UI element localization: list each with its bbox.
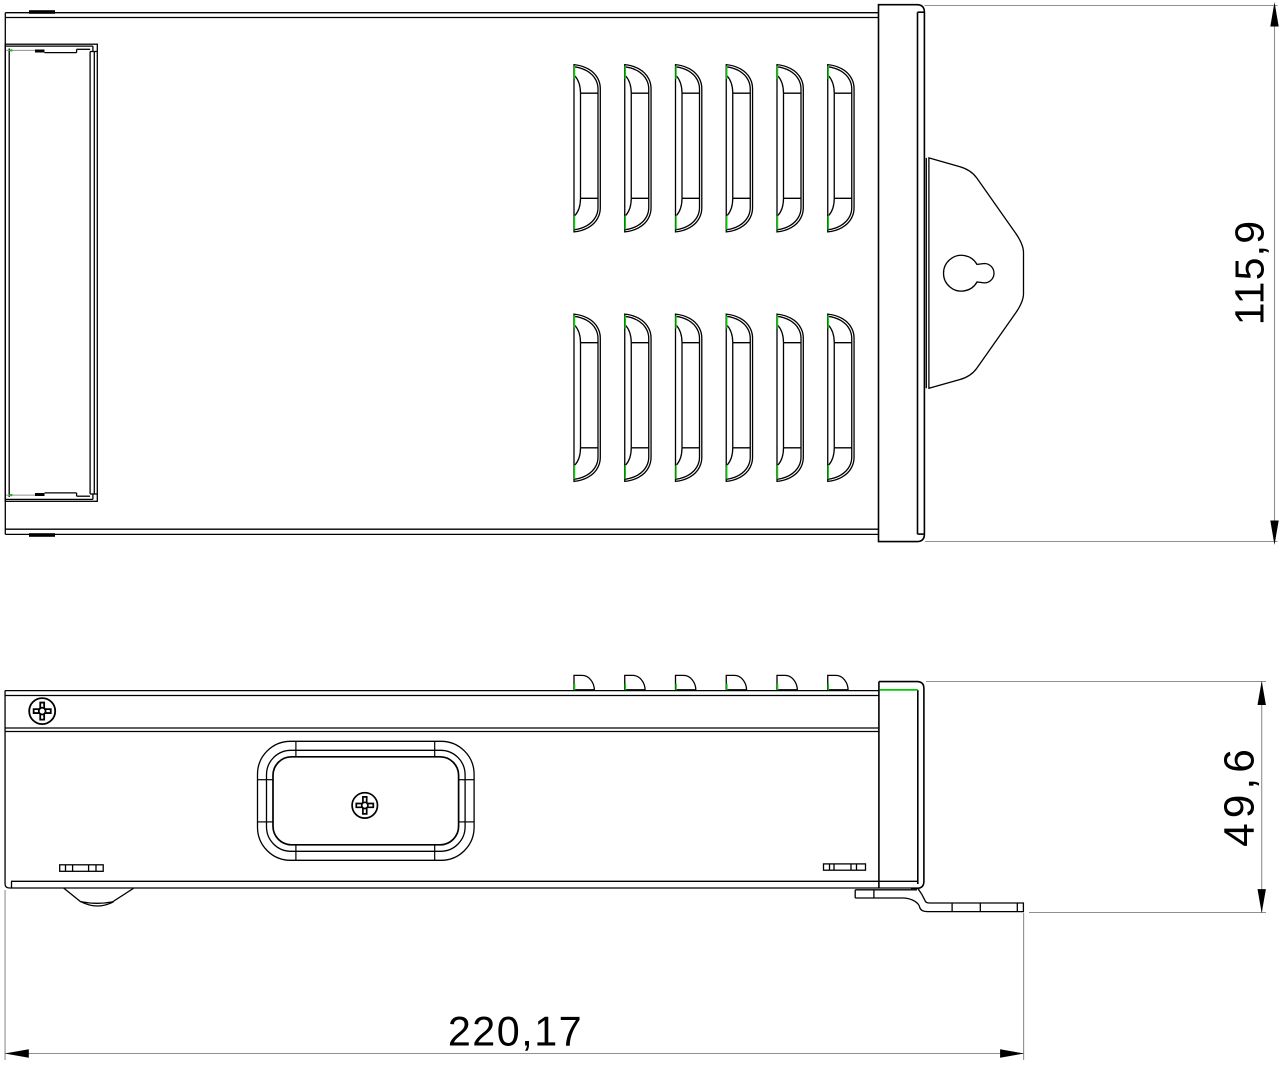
svg-text:220,17: 220,17 [448, 1009, 583, 1055]
svg-text:115,9: 115,9 [1227, 220, 1273, 326]
svg-text:49,6: 49,6 [1217, 744, 1264, 847]
